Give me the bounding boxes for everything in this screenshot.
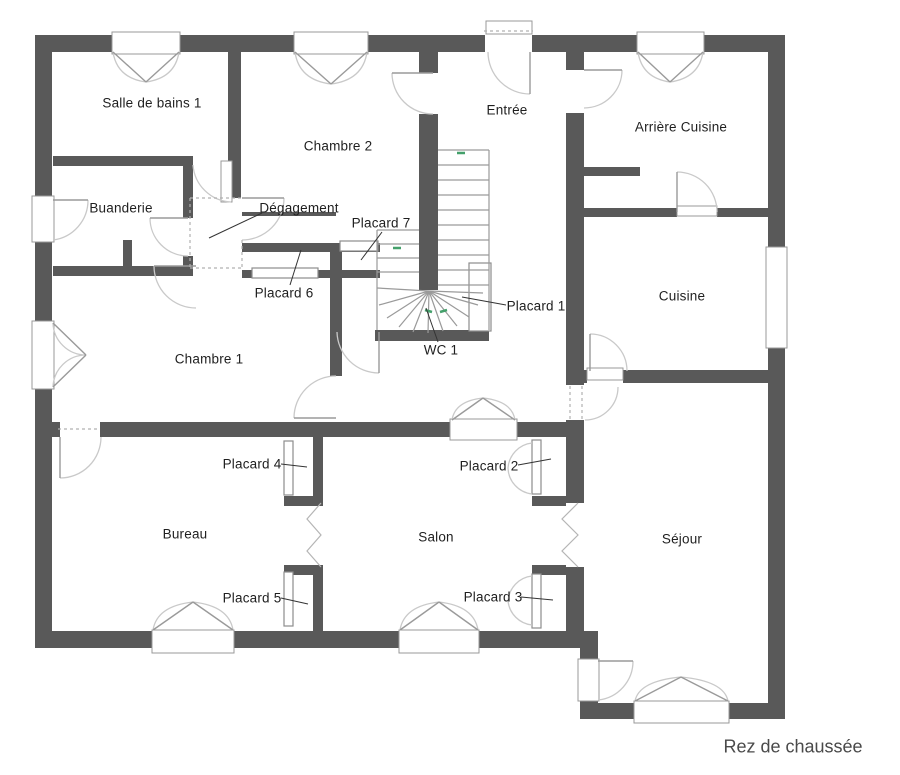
room-label-chambre-1: Chambre 1: [175, 352, 244, 367]
floor-title: Rez de chaussée: [723, 737, 862, 758]
sejour-door-arc: [585, 387, 618, 420]
window-salle-de-bains: [112, 32, 180, 54]
room-label-sejour: Séjour: [662, 532, 702, 547]
bifold-salon-sejour: [562, 503, 578, 567]
window-salon-interior: [450, 419, 517, 440]
dashed-openings: [58, 31, 582, 429]
window-bureau: [152, 630, 234, 653]
window-sejour: [634, 701, 729, 723]
room-label-placard-3: Placard 3: [464, 590, 523, 605]
window-chambre-2: [294, 32, 368, 54]
floor-plan-drawing: [0, 0, 900, 775]
placard-4-door: [284, 441, 293, 495]
placard-2-door: [532, 440, 541, 494]
window-buanderie: [32, 196, 54, 242]
arriere-cuisine-door-arc: [584, 70, 622, 108]
room-label-placard-5: Placard 5: [223, 591, 282, 606]
room-label-buanderie: Buanderie: [89, 201, 152, 216]
front-door-opening: [485, 35, 532, 52]
room-label-cuisine: Cuisine: [659, 289, 705, 304]
room-label-bureau: Bureau: [163, 527, 208, 542]
room-label-placard-1: Placard 1: [507, 299, 566, 314]
bureau-door-arc: [60, 437, 101, 478]
chambre-1-hall-door-arc: [294, 376, 336, 418]
buanderie-door-arc: [150, 218, 188, 256]
room-label-salle-de-bains-1: Salle de bains 1: [102, 96, 201, 111]
placard-7-door: [340, 241, 378, 251]
room-label-degagement: Dégagement: [259, 201, 338, 216]
room-label-chambre-2: Chambre 2: [304, 139, 373, 154]
placard-6-door: [252, 268, 318, 278]
front-door-step: [486, 21, 532, 34]
window-chambre-1: [32, 321, 54, 389]
cuisine-door-arc: [590, 334, 627, 371]
placard-1-door: [469, 263, 491, 331]
window-cuisine: [766, 247, 787, 348]
window-arriere-cuisine: [637, 32, 704, 54]
room-label-arriere-cuisine: Arrière Cuisine: [635, 120, 727, 135]
sejour-glazed-door-arc: [598, 661, 633, 700]
chambre-2-entree-door-arc: [392, 73, 433, 114]
bifold-bureau-salon: [307, 503, 321, 567]
room-label-wc-1: WC 1: [424, 343, 459, 358]
wc-door-arc: [337, 332, 379, 373]
buanderie-window-arc: [53, 200, 88, 240]
walls: [35, 35, 785, 719]
room-label-placard-4: Placard 4: [223, 457, 282, 472]
door-panel-salle-de-bains: [221, 161, 232, 202]
room-label-placard-7: Placard 7: [352, 216, 411, 231]
room-label-placard-2: Placard 2: [460, 459, 519, 474]
room-label-salon: Salon: [418, 530, 454, 545]
window-salon: [399, 630, 479, 653]
door-glazed-sejour: [578, 659, 599, 701]
front-door-arc: [488, 52, 530, 94]
placard-3-door: [532, 574, 541, 628]
room-label-entree: Entrée: [487, 103, 528, 118]
floor-plan: Salle de bains 1 Chambre 2 Entrée Arrièr…: [0, 0, 900, 775]
room-label-placard-6: Placard 6: [255, 286, 314, 301]
